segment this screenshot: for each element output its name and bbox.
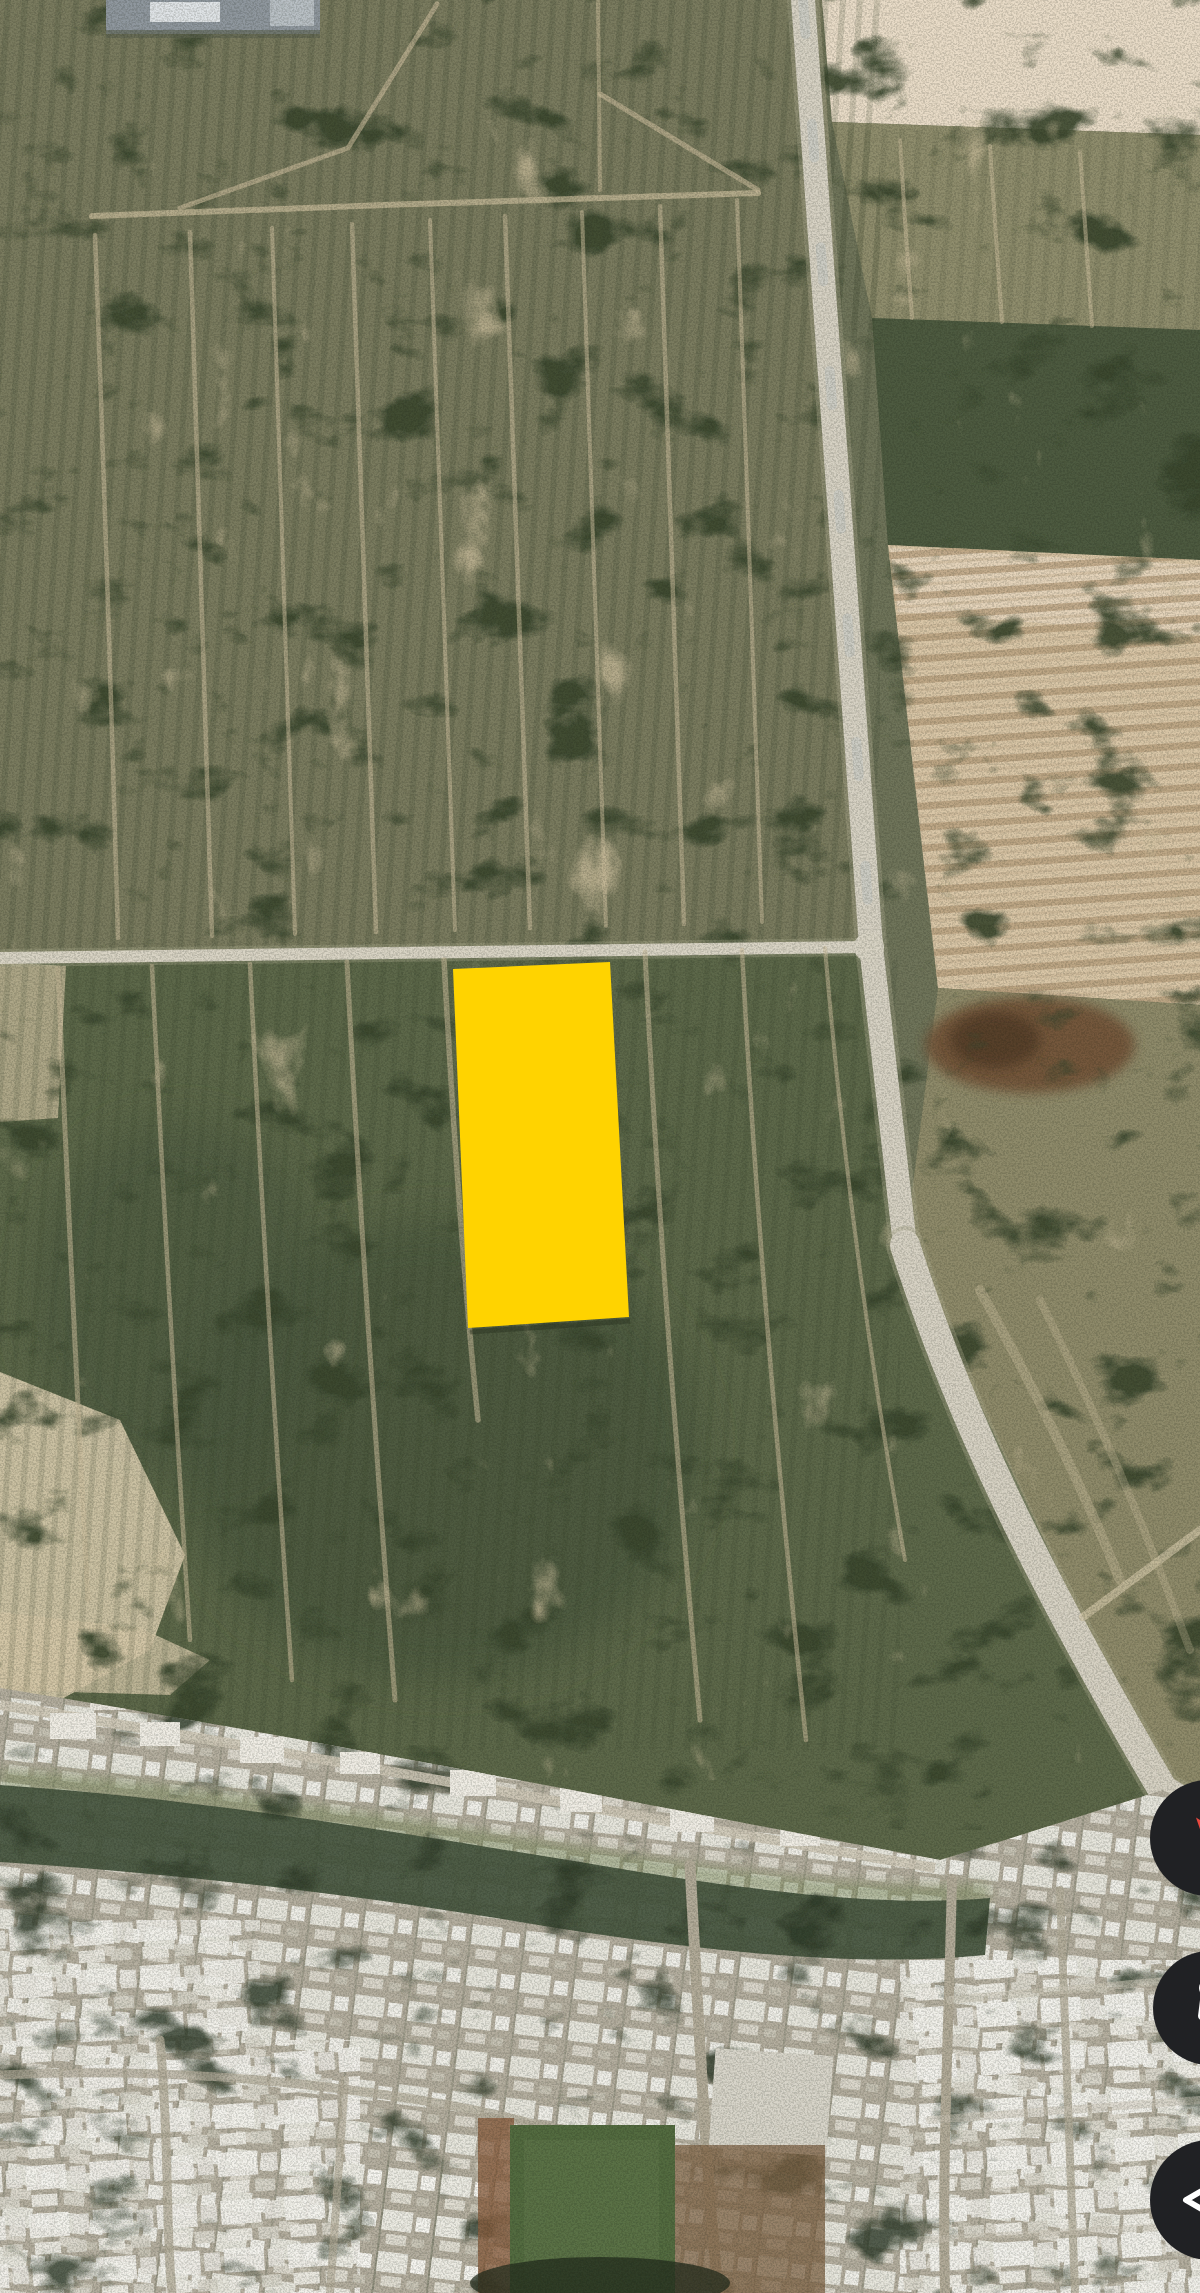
app-screen [0, 0, 1200, 2293]
button-circle [1150, 1780, 1200, 1896]
parcel-highlight[interactable] [453, 962, 629, 1328]
street-view-button[interactable] [1150, 1948, 1200, 2068]
compass-button[interactable] [1148, 1778, 1200, 1898]
map-canvas[interactable] [0, 0, 1200, 2293]
collapse-button[interactable] [1148, 2139, 1200, 2259]
button-circle [1153, 1951, 1200, 2065]
